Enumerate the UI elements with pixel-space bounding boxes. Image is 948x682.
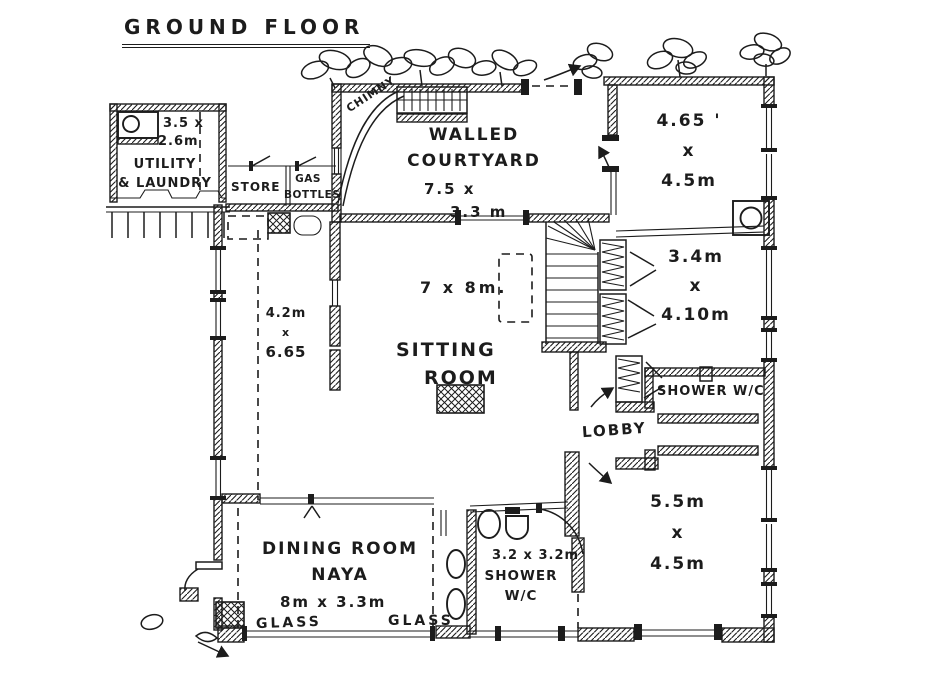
shower-wc-east-label: SHOWER W/C [657,383,765,401]
utility-dims-line1: 3.5 x [163,115,204,133]
staircase [542,218,606,410]
room-se-line3: 4.5m [622,553,734,576]
dining-name-line2: NAYA [244,563,436,589]
gate-arrow [544,66,580,80]
sitting-name-line1: SITTING [396,337,512,365]
lobby-door-arrow [591,388,613,407]
annex-cupboard-fixtures [228,213,321,239]
sitting-dims-label: 7 x 8m. [420,277,507,299]
shower-south-dims-label: 3.2 x 3.2m [492,547,579,565]
floor-plan-page: GROUND FLOOR CHIMNY 3.5 x 2.6m UTILITY &… [0,0,948,682]
courtyard-dims-line2: 3.3 m [450,201,534,224]
room-se-door-arrow [589,463,611,483]
page-title: GROUND FLOOR [122,14,370,48]
room-ne-line3: 4.5m [628,170,750,193]
utility-dims-line2: 2.6m [158,133,204,151]
room-e-line2: x [638,275,754,298]
room-se-line1: 5.5m [622,491,734,514]
room-se-dims-label: 5.5m x 4.5m [622,491,734,584]
glass-right-label: GLASS [388,612,454,631]
sitting-name-line2: ROOM [424,365,512,393]
courtyard-dims-line1: 7.5 x [424,178,534,201]
store-label: STORE [231,179,280,195]
shower-wc-south-label: SHOWER W/C [468,566,574,607]
dining-dims-label: 8m x 3.3m [280,592,386,612]
left-outer-wall [210,205,226,630]
gas-line1: GAS [284,172,332,188]
courtyard-name-line1: WALLED [378,122,570,148]
utility-name-line2: & LAUNDRY [112,175,218,194]
annex-line1: 4.2m [252,306,320,323]
exterior-door [180,562,222,601]
utility-room-label: UTILITY & LAUNDRY [112,156,218,194]
courtyard-dims-label: 7.5 x 3.3 m [424,178,534,225]
courtyard-name-line2: COURTYARD [378,148,570,174]
dining-name-line1: DINING ROOM [244,537,436,563]
room-ne-dims-label: 4.65 ' x 4.5m [628,110,750,200]
external-steps [106,207,230,238]
toilet-icon [505,507,528,539]
room-e-dims-label: 3.4m x 4.10m [638,246,754,333]
utility-dims-label: 3.5 x 2.6m [163,115,204,150]
room-se-line2: x [622,522,734,545]
room-ne-line1: 4.65 ' [628,110,750,133]
sitting-room-west-wall [330,222,340,390]
dining-room-label: DINING ROOM NAYA [244,537,436,588]
shower-south-line1: SHOWER [468,566,574,586]
glass-left-label: GLASS [256,613,322,634]
annex-dims-label: 4.2m x 6.65 [252,306,320,363]
room-ne-line2: x [628,140,750,163]
sink-icon [478,510,500,538]
room-e-line3: 4.10m [638,304,754,327]
annex-line3: 6.65 [252,343,320,363]
shower-south-line2: W/C [468,586,574,606]
utility-name-line1: UTILITY [112,156,218,175]
gas-line2: BOTTLES [284,188,332,204]
washing-machine-icon [118,112,158,144]
gas-bottles-label: GAS BOTTLES [284,172,332,204]
room-e-line1: 3.4m [638,246,754,269]
walled-courtyard-label: WALLED COURTYARD [378,122,570,175]
annex-line2: x [252,326,320,340]
right-outer-wall [761,77,777,642]
radiator-ovals [447,550,465,619]
sitting-room-label: SITTING ROOM [396,337,512,392]
